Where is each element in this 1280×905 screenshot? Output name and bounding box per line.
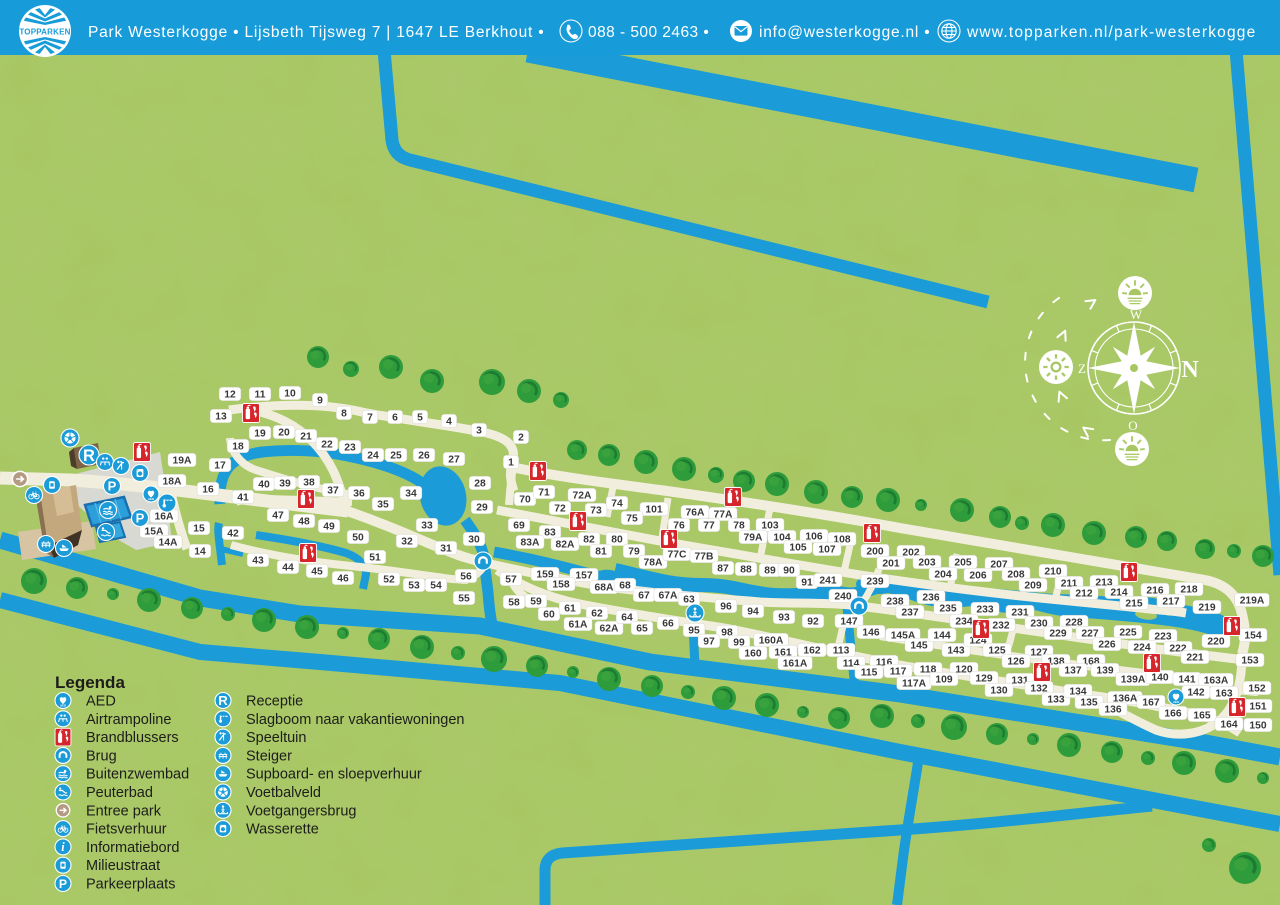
svg-text:130: 130 [990, 686, 1007, 697]
svg-text:38: 38 [303, 478, 315, 489]
svg-text:239: 239 [866, 577, 883, 588]
svg-text:140: 140 [1151, 673, 1168, 684]
svg-text:206: 206 [969, 571, 986, 582]
svg-text:82: 82 [583, 535, 595, 546]
svg-text:79: 79 [628, 547, 640, 558]
svg-text:136: 136 [1104, 705, 1121, 716]
svg-text:82A: 82A [556, 540, 575, 551]
svg-text:77: 77 [703, 521, 715, 532]
svg-text:209: 209 [1024, 581, 1041, 592]
svg-text:1: 1 [508, 458, 514, 469]
svg-text:Informatiebord: Informatiebord [86, 840, 180, 856]
svg-text:AED: AED [148, 497, 154, 501]
svg-text:AED: AED [1173, 700, 1179, 704]
svg-text:135: 135 [1080, 698, 1097, 709]
svg-text:31: 31 [440, 544, 452, 555]
svg-text:73: 73 [590, 506, 602, 517]
svg-text:217: 217 [1162, 597, 1179, 608]
svg-text:91: 91 [801, 578, 813, 589]
svg-text:44: 44 [282, 563, 294, 574]
svg-text:203: 203 [918, 558, 935, 569]
svg-text:234: 234 [955, 617, 972, 628]
svg-text:79A: 79A [744, 533, 763, 544]
svg-text:Slagboom naar vakantiewoningen: Slagboom naar vakantiewoningen [246, 712, 464, 728]
svg-text:232: 232 [992, 621, 1009, 632]
svg-text:77C: 77C [668, 550, 687, 561]
svg-text:6: 6 [392, 413, 398, 424]
svg-text:54: 54 [430, 581, 442, 592]
svg-text:P: P [108, 479, 117, 494]
svg-text:83A: 83A [521, 538, 540, 549]
svg-text:AED: AED [86, 694, 116, 710]
svg-text:107: 107 [818, 545, 835, 556]
svg-text:Steiger: Steiger [246, 748, 292, 764]
svg-text:Wasserette: Wasserette [246, 822, 319, 838]
svg-text:109: 109 [935, 675, 952, 686]
svg-text:12: 12 [224, 390, 236, 401]
svg-text:103: 103 [761, 521, 778, 532]
svg-text:61A: 61A [569, 620, 588, 631]
svg-text:161A: 161A [783, 659, 808, 670]
svg-text:39: 39 [279, 479, 291, 490]
svg-text:113: 113 [833, 646, 850, 657]
svg-text:93: 93 [778, 613, 790, 624]
svg-text:78: 78 [733, 521, 745, 532]
svg-text:13: 13 [215, 412, 227, 423]
svg-text:25: 25 [390, 451, 402, 462]
svg-text:15: 15 [193, 524, 205, 535]
svg-text:115: 115 [861, 668, 878, 679]
svg-text:41: 41 [237, 493, 249, 504]
svg-text:R: R [83, 447, 95, 465]
svg-text:Brandblussers: Brandblussers [86, 730, 179, 746]
svg-text:27: 27 [448, 455, 460, 466]
svg-text:Buitenzwembad: Buitenzwembad [86, 767, 189, 783]
svg-text:32: 32 [401, 537, 413, 548]
svg-text:219: 219 [1198, 603, 1215, 614]
svg-text:97: 97 [703, 637, 715, 648]
svg-text:237: 237 [901, 608, 918, 619]
svg-text:164: 164 [1220, 720, 1237, 731]
svg-text:5: 5 [417, 413, 423, 424]
svg-text:224: 224 [1133, 643, 1150, 654]
svg-text:21: 21 [300, 432, 312, 443]
svg-text:info@westerkogge.nl •: info@westerkogge.nl • [759, 24, 931, 41]
svg-text:59: 59 [530, 597, 542, 608]
svg-text:Speeltuin: Speeltuin [246, 730, 306, 746]
svg-text:146: 146 [862, 628, 879, 639]
svg-text:3: 3 [476, 426, 482, 437]
svg-text:160A: 160A [759, 636, 784, 647]
svg-text:Peuterbad: Peuterbad [86, 785, 153, 801]
svg-text:215: 215 [1125, 599, 1142, 610]
svg-text:95: 95 [688, 626, 700, 637]
svg-text:77B: 77B [695, 552, 714, 563]
svg-text:76A: 76A [686, 508, 705, 519]
svg-text:Airtrampoline: Airtrampoline [86, 712, 171, 728]
svg-text:Fietsverhuur: Fietsverhuur [86, 822, 167, 838]
svg-text:143: 143 [947, 646, 964, 657]
svg-text:52: 52 [383, 575, 395, 586]
svg-text:64: 64 [621, 613, 633, 624]
svg-text:18A: 18A [163, 477, 182, 488]
svg-text:56: 56 [460, 572, 472, 583]
svg-text:105: 105 [789, 543, 806, 554]
svg-text:60: 60 [543, 610, 555, 621]
svg-text:145: 145 [910, 641, 927, 652]
svg-text:N: N [1181, 357, 1199, 383]
svg-text:24: 24 [367, 451, 379, 462]
svg-text:88: 88 [740, 565, 752, 576]
svg-text:229: 229 [1049, 629, 1066, 640]
svg-text:36: 36 [353, 489, 365, 500]
svg-text:78A: 78A [644, 558, 663, 569]
svg-text:66: 66 [662, 619, 674, 630]
svg-text:47: 47 [272, 511, 284, 522]
svg-text:153: 153 [1241, 656, 1258, 667]
svg-text:90: 90 [783, 566, 795, 577]
svg-text:151: 151 [1249, 702, 1266, 713]
svg-text:233: 233 [976, 605, 993, 616]
svg-text:152: 152 [1248, 684, 1265, 695]
svg-text:69: 69 [513, 521, 525, 532]
svg-text:137: 137 [1064, 666, 1081, 677]
svg-text:48: 48 [298, 517, 310, 528]
svg-text:16: 16 [202, 485, 214, 496]
svg-text:Voetgangersbrug: Voetgangersbrug [246, 803, 356, 819]
svg-text:72A: 72A [573, 491, 592, 502]
svg-text:Brug: Brug [86, 748, 117, 764]
svg-text:14: 14 [194, 547, 206, 558]
svg-text:www.topparken.nl/park-westerko: www.topparken.nl/park-westerkogge [966, 24, 1256, 41]
svg-text:Parkeerplaats: Parkeerplaats [86, 877, 175, 893]
svg-text:O: O [1128, 418, 1137, 433]
svg-text:30: 30 [468, 535, 480, 546]
svg-text:Entree park: Entree park [86, 803, 162, 819]
svg-text:33: 33 [421, 521, 433, 532]
svg-text:67: 67 [638, 591, 650, 602]
svg-text:42: 42 [227, 529, 239, 540]
svg-text:101: 101 [645, 505, 662, 516]
svg-text:53: 53 [408, 581, 420, 592]
svg-text:83: 83 [544, 528, 556, 539]
svg-text:46: 46 [337, 574, 349, 585]
svg-text:58: 58 [508, 598, 520, 609]
svg-text:22: 22 [321, 440, 333, 451]
svg-text:87: 87 [717, 564, 729, 575]
svg-text:55: 55 [458, 594, 470, 605]
svg-text:Legenda: Legenda [55, 673, 125, 692]
svg-text:160: 160 [744, 649, 761, 660]
svg-text:40: 40 [258, 480, 270, 491]
svg-text:68: 68 [619, 581, 631, 592]
svg-text:10: 10 [284, 389, 296, 400]
svg-text:72: 72 [554, 504, 566, 515]
svg-text:Milieustraat: Milieustraat [86, 858, 160, 874]
svg-text:241: 241 [819, 576, 836, 587]
svg-text:163A: 163A [1204, 676, 1229, 687]
svg-text:62: 62 [591, 609, 603, 620]
svg-text:240: 240 [834, 592, 851, 603]
svg-text:68A: 68A [595, 583, 614, 594]
svg-text:139: 139 [1096, 666, 1113, 677]
svg-text:26: 26 [418, 451, 430, 462]
svg-text:35: 35 [377, 500, 389, 511]
svg-text:i: i [61, 840, 65, 854]
svg-text:144: 144 [933, 631, 950, 642]
svg-text:117A: 117A [902, 679, 927, 690]
svg-text:221: 221 [1186, 653, 1203, 664]
svg-text:71: 71 [538, 488, 550, 499]
svg-text:2: 2 [518, 433, 524, 444]
svg-text:165: 165 [1193, 711, 1210, 722]
svg-text:141: 141 [1178, 675, 1195, 686]
svg-text:201: 201 [882, 559, 899, 570]
svg-text:75: 75 [626, 514, 638, 525]
svg-text:96: 96 [720, 602, 732, 613]
svg-text:204: 204 [934, 570, 951, 581]
svg-text:65: 65 [636, 624, 648, 635]
svg-text:4: 4 [446, 417, 452, 428]
svg-text:088 - 500 2463 •: 088 - 500 2463 • [588, 24, 709, 41]
svg-text:29: 29 [476, 503, 488, 514]
svg-text:94: 94 [747, 607, 759, 618]
svg-text:14A: 14A [159, 538, 178, 549]
svg-text:80: 80 [611, 535, 623, 546]
svg-text:218: 218 [1180, 585, 1197, 596]
svg-text:8: 8 [341, 409, 347, 420]
svg-text:167: 167 [1142, 698, 1159, 709]
svg-text:142: 142 [1187, 688, 1204, 699]
svg-text:50: 50 [352, 533, 364, 544]
svg-text:81: 81 [595, 547, 607, 558]
svg-text:37: 37 [327, 486, 339, 497]
svg-text:126: 126 [1007, 657, 1024, 668]
svg-text:92: 92 [807, 617, 819, 628]
svg-text:18: 18 [232, 442, 244, 453]
svg-text:23: 23 [344, 443, 356, 454]
svg-text:TOPPARKEN: TOPPARKEN [19, 28, 70, 37]
svg-text:70: 70 [519, 495, 531, 506]
svg-text:150: 150 [1249, 721, 1266, 732]
svg-text:154: 154 [1244, 631, 1261, 642]
svg-text:67A: 67A [659, 591, 678, 602]
svg-text:205: 205 [954, 558, 971, 569]
svg-text:Z: Z [1078, 361, 1086, 376]
svg-text:158: 158 [552, 580, 569, 591]
svg-text:139A: 139A [1121, 675, 1146, 686]
svg-text:7: 7 [367, 413, 373, 424]
svg-text:225: 225 [1119, 628, 1136, 639]
svg-text:34: 34 [405, 489, 417, 500]
svg-text:219A: 219A [1240, 596, 1265, 607]
svg-text:147: 147 [840, 617, 857, 628]
svg-text:129: 129 [975, 674, 992, 685]
svg-text:Supboard- en sloepverhuur: Supboard- en sloepverhuur [246, 767, 422, 783]
svg-text:P: P [136, 511, 145, 526]
svg-text:Park Westerkogge • Lijsbeth Ti: Park Westerkogge • Lijsbeth Tijsweg 7 | … [88, 24, 544, 41]
svg-text:45: 45 [311, 567, 323, 578]
svg-text:162: 162 [803, 646, 820, 657]
svg-text:235: 235 [939, 604, 956, 615]
svg-text:166: 166 [1164, 709, 1181, 720]
svg-text:212: 212 [1075, 589, 1092, 600]
svg-text:9: 9 [317, 396, 323, 407]
svg-text:R: R [218, 693, 228, 708]
svg-text:49: 49 [323, 522, 335, 533]
svg-text:Receptie: Receptie [246, 694, 303, 710]
svg-text:28: 28 [474, 479, 486, 490]
svg-text:19: 19 [254, 429, 266, 440]
svg-text:220: 220 [1207, 637, 1224, 648]
svg-text:16A: 16A [155, 512, 174, 523]
svg-text:43: 43 [252, 556, 264, 567]
svg-text:223: 223 [1154, 632, 1171, 643]
svg-text:210: 210 [1044, 567, 1061, 578]
svg-text:117: 117 [890, 667, 907, 678]
svg-text:P: P [59, 877, 67, 891]
svg-text:20: 20 [278, 428, 290, 439]
svg-text:19A: 19A [173, 456, 192, 467]
svg-text:89: 89 [764, 566, 776, 577]
svg-text:Voetbalveld: Voetbalveld [246, 785, 321, 801]
svg-text:51: 51 [369, 553, 381, 564]
svg-text:200: 200 [866, 547, 883, 558]
svg-text:17: 17 [214, 461, 226, 472]
svg-text:57: 57 [505, 575, 517, 586]
svg-text:74: 74 [611, 499, 623, 510]
svg-text:61: 61 [564, 604, 576, 615]
svg-text:226: 226 [1098, 640, 1115, 651]
svg-text:157: 157 [575, 571, 592, 582]
svg-text:11: 11 [255, 390, 266, 401]
svg-text:62A: 62A [600, 624, 619, 635]
svg-text:AED: AED [60, 703, 66, 707]
svg-text:133: 133 [1047, 695, 1064, 706]
